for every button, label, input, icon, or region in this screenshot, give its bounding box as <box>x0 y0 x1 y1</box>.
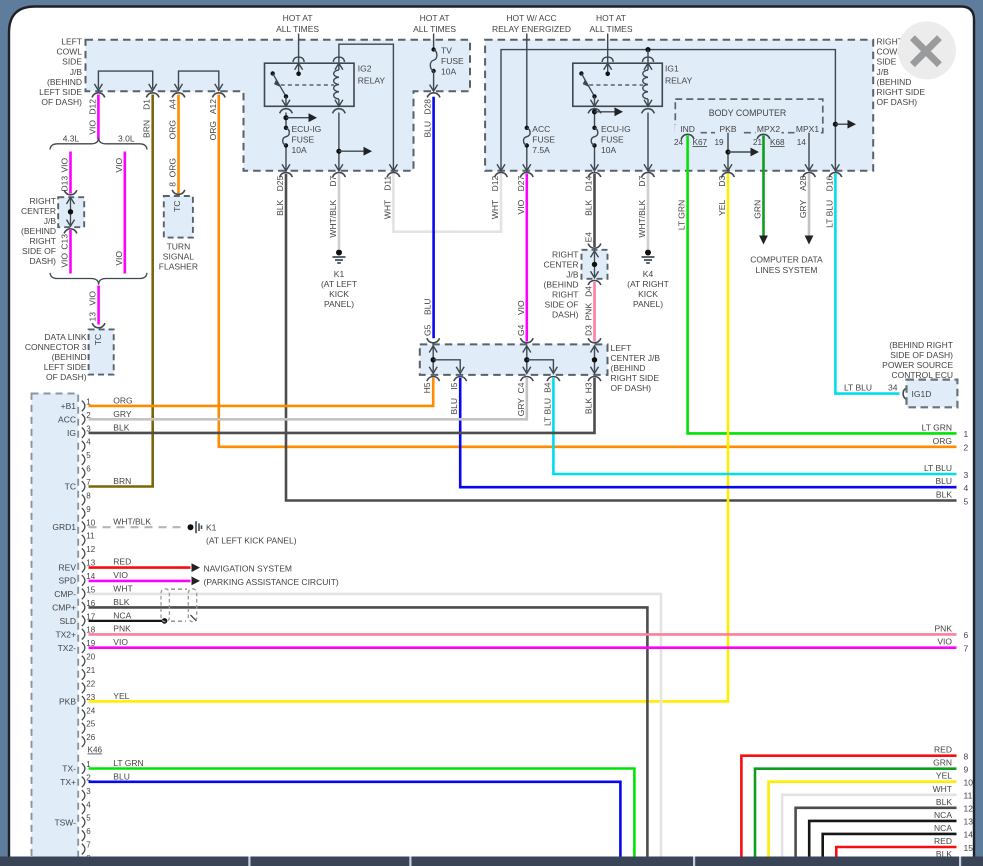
svg-text:ACC: ACC <box>532 124 550 134</box>
svg-text:34: 34 <box>888 383 898 393</box>
svg-text:RIGHT: RIGHT <box>30 236 56 246</box>
svg-text:(PARKING ASSISTANCE CIRCUIT): (PARKING ASSISTANCE CIRCUIT) <box>204 577 339 587</box>
svg-text:MPX1: MPX1 <box>796 124 819 134</box>
svg-text:+B1: +B1 <box>61 401 77 411</box>
svg-text:H5: H5 <box>422 382 432 393</box>
svg-text:C4: C4 <box>516 382 526 393</box>
svg-text:IG2: IG2 <box>358 64 372 74</box>
svg-text:LT BLU: LT BLU <box>844 383 872 393</box>
svg-text:LT BLU: LT BLU <box>542 398 552 426</box>
svg-text:BLK: BLK <box>936 490 952 500</box>
svg-text:6: 6 <box>86 465 91 474</box>
svg-text:WHT/BLK: WHT/BLK <box>637 199 647 237</box>
svg-text:H3: H3 <box>584 382 594 393</box>
svg-text:LT GRN: LT GRN <box>677 200 687 230</box>
svg-text:VIO: VIO <box>87 120 97 135</box>
svg-text:(BEHIND: (BEHIND <box>52 352 87 362</box>
svg-text:ORG: ORG <box>113 395 132 405</box>
svg-text:LT BLU: LT BLU <box>924 463 952 473</box>
svg-text:BLU: BLU <box>935 476 952 486</box>
svg-text:FUSE: FUSE <box>601 135 624 145</box>
svg-text:RELAY: RELAY <box>358 76 386 86</box>
svg-text:D1: D1 <box>142 99 152 110</box>
svg-text:K46: K46 <box>88 746 103 755</box>
svg-text:RELAY: RELAY <box>665 76 693 86</box>
svg-text:E4: E4 <box>584 232 594 243</box>
svg-text:KICK: KICK <box>329 289 349 299</box>
svg-text:(AT LEFT: (AT LEFT <box>321 279 357 289</box>
svg-text:D25: D25 <box>275 176 285 192</box>
svg-text:D13: D13 <box>60 176 70 192</box>
svg-text:PNK: PNK <box>584 303 594 321</box>
svg-text:BODY COMPUTER: BODY COMPUTER <box>709 108 787 118</box>
svg-text:SIDE OF DASH): SIDE OF DASH) <box>890 350 953 360</box>
svg-text:G5: G5 <box>423 324 433 336</box>
svg-text:ALL TIMES: ALL TIMES <box>590 24 633 34</box>
svg-text:SIDE: SIDE <box>62 57 82 67</box>
svg-text:24: 24 <box>86 706 95 715</box>
svg-text:4: 4 <box>86 438 91 447</box>
svg-text:FUSE: FUSE <box>441 56 464 66</box>
svg-text:ALL TIMES: ALL TIMES <box>276 24 319 34</box>
svg-text:21: 21 <box>86 666 95 675</box>
svg-text:DASH): DASH) <box>30 256 57 266</box>
svg-text:7: 7 <box>964 644 969 654</box>
svg-text:CMP-: CMP- <box>54 589 76 599</box>
svg-text:RED: RED <box>113 557 131 567</box>
svg-text:NCA: NCA <box>113 610 131 620</box>
svg-text:J/B: J/B <box>70 67 83 77</box>
svg-text:YEL: YEL <box>113 691 129 701</box>
svg-text:RIGHT: RIGHT <box>30 196 56 206</box>
svg-text:COMPUTER DATA: COMPUTER DATA <box>750 255 823 265</box>
svg-text:CENTER J/B: CENTER J/B <box>611 353 661 363</box>
svg-text:GRY: GRY <box>516 398 526 417</box>
svg-text:YEL: YEL <box>717 200 727 216</box>
svg-text:POWER SOURCE: POWER SOURCE <box>882 360 953 370</box>
svg-text:D7: D7 <box>637 176 647 187</box>
svg-text:10A: 10A <box>292 145 307 155</box>
svg-text:VIO: VIO <box>114 251 124 266</box>
svg-text:PNK: PNK <box>935 623 953 633</box>
svg-text:J/B: J/B <box>566 270 579 280</box>
svg-text:(BEHIND: (BEHIND <box>544 280 579 290</box>
svg-text:CONNECTOR 3: CONNECTOR 3 <box>25 342 87 352</box>
svg-text:13: 13 <box>964 817 974 827</box>
svg-text:CMP+: CMP+ <box>52 603 76 613</box>
svg-text:8: 8 <box>964 752 969 762</box>
svg-text:13: 13 <box>86 559 95 568</box>
svg-text:TX2-: TX2- <box>58 643 77 653</box>
svg-text:IND: IND <box>680 124 695 134</box>
svg-text:LT BLU: LT BLU <box>824 200 834 228</box>
svg-text:IG1: IG1 <box>665 64 679 74</box>
svg-text:10A: 10A <box>441 67 456 77</box>
svg-text:WHT/BLK: WHT/BLK <box>328 199 338 237</box>
svg-text:10A: 10A <box>601 145 616 155</box>
svg-text:26: 26 <box>86 733 95 742</box>
svg-text:20: 20 <box>86 653 95 662</box>
svg-text:PNK: PNK <box>113 624 131 634</box>
svg-text:VIO: VIO <box>516 300 526 315</box>
svg-text:VIO: VIO <box>516 199 526 214</box>
svg-text:D27: D27 <box>516 176 526 192</box>
svg-text:SPD: SPD <box>59 576 76 586</box>
svg-text:8: 8 <box>86 491 91 500</box>
svg-text:TC: TC <box>172 201 182 212</box>
svg-text:J/B: J/B <box>44 216 57 226</box>
svg-text:D7: D7 <box>328 176 338 187</box>
svg-text:4: 4 <box>86 800 91 809</box>
svg-text:K68: K68 <box>770 138 785 147</box>
svg-text:RIGHT: RIGHT <box>552 250 578 260</box>
svg-text:OF DASH): OF DASH) <box>611 383 652 393</box>
svg-text:ORG: ORG <box>168 120 178 139</box>
svg-text:REV: REV <box>59 562 77 572</box>
svg-text:6: 6 <box>964 630 969 640</box>
svg-text:TX+: TX+ <box>60 777 76 787</box>
svg-text:I5: I5 <box>449 382 459 389</box>
svg-text:D12: D12 <box>490 176 500 192</box>
svg-text:FUSE: FUSE <box>292 135 315 145</box>
svg-text:5: 5 <box>86 451 91 460</box>
svg-text:19: 19 <box>715 138 725 147</box>
svg-text:LINES SYSTEM: LINES SYSTEM <box>756 265 818 275</box>
svg-text:CENTER: CENTER <box>544 260 579 270</box>
svg-text:TC: TC <box>93 334 103 345</box>
svg-text:21: 21 <box>753 138 763 147</box>
svg-text:WHT/BLK: WHT/BLK <box>113 516 151 526</box>
svg-text:RIGHT SIDE: RIGHT SIDE <box>877 87 926 97</box>
svg-text:10: 10 <box>964 778 974 788</box>
svg-text:OF DASH): OF DASH) <box>46 372 87 382</box>
svg-text:WHT: WHT <box>113 583 132 593</box>
svg-text:22: 22 <box>86 679 95 688</box>
svg-text:VIO: VIO <box>114 157 124 172</box>
svg-text:23: 23 <box>86 693 95 702</box>
svg-text:12: 12 <box>964 804 974 814</box>
svg-text:11: 11 <box>964 791 973 801</box>
svg-text:25: 25 <box>86 720 95 729</box>
svg-text:D16: D16 <box>824 176 834 192</box>
svg-text:RIGHT: RIGHT <box>552 290 578 300</box>
svg-text:SIDE OF: SIDE OF <box>544 300 578 310</box>
svg-text:A28: A28 <box>798 176 808 191</box>
svg-text:LT GRN: LT GRN <box>922 422 952 432</box>
svg-text:D14: D14 <box>584 176 594 192</box>
svg-text:1: 1 <box>964 429 969 439</box>
svg-text:GRY: GRY <box>798 199 808 218</box>
svg-text:RELAY ENERGIZED: RELAY ENERGIZED <box>492 24 571 34</box>
svg-text:NCA: NCA <box>934 823 952 833</box>
svg-text:VIO: VIO <box>60 253 70 268</box>
svg-text:VIO: VIO <box>88 291 98 306</box>
svg-text:7.5A: 7.5A <box>532 145 550 155</box>
svg-text:FUSE: FUSE <box>532 135 555 145</box>
svg-text:DATA LINK: DATA LINK <box>44 332 87 342</box>
svg-text:D28: D28 <box>423 99 433 115</box>
svg-text:PANEL): PANEL) <box>324 299 354 309</box>
svg-text:WHT: WHT <box>382 200 392 219</box>
svg-text:A4: A4 <box>168 99 178 110</box>
svg-text:D12: D12 <box>87 99 97 115</box>
svg-text:D11: D11 <box>382 176 392 191</box>
svg-text:BLU: BLU <box>423 298 433 315</box>
svg-text:(BEHIND: (BEHIND <box>21 226 56 236</box>
svg-text:3: 3 <box>86 787 91 796</box>
svg-text:A12: A12 <box>208 99 218 114</box>
svg-text:KICK: KICK <box>638 289 658 299</box>
svg-text:1: 1 <box>86 397 91 406</box>
svg-text:RED: RED <box>934 836 952 846</box>
svg-text:SLD: SLD <box>59 616 76 626</box>
svg-text:BLU: BLU <box>113 771 130 781</box>
svg-text:9: 9 <box>964 765 969 775</box>
svg-text:WHT: WHT <box>933 784 952 794</box>
svg-text:(AT RIGHT: (AT RIGHT <box>627 279 669 289</box>
svg-text:5: 5 <box>964 496 969 506</box>
svg-text:TURN: TURN <box>167 242 191 252</box>
svg-text:TV: TV <box>441 46 452 56</box>
svg-text:HOT AT: HOT AT <box>596 13 626 23</box>
svg-text:4.3L: 4.3L <box>63 134 80 144</box>
svg-text:BLK: BLK <box>584 199 594 215</box>
svg-text:D3: D3 <box>717 176 727 187</box>
svg-text:BLK: BLK <box>936 797 952 807</box>
svg-text:MPX2: MPX2 <box>757 124 780 134</box>
svg-text:(BEHIND RIGHT: (BEHIND RIGHT <box>889 340 953 350</box>
svg-text:LEFT: LEFT <box>611 343 632 353</box>
svg-text:BLK: BLK <box>113 597 129 607</box>
svg-text:(BEHIND: (BEHIND <box>877 77 912 87</box>
svg-text:PKB: PKB <box>59 697 76 707</box>
svg-text:3.0L: 3.0L <box>118 134 135 144</box>
svg-text:BLU: BLU <box>449 398 459 415</box>
svg-text:14: 14 <box>797 138 807 147</box>
svg-text:TX-: TX- <box>62 764 76 774</box>
svg-text:COWL: COWL <box>57 47 83 57</box>
svg-text:13: 13 <box>88 312 98 322</box>
svg-text:8: 8 <box>168 182 178 187</box>
svg-text:PKB: PKB <box>719 124 736 134</box>
svg-text:24: 24 <box>674 138 684 147</box>
svg-text:2: 2 <box>86 411 91 420</box>
svg-text:BLU: BLU <box>423 121 433 138</box>
svg-text:WHT: WHT <box>490 200 500 219</box>
svg-text:HOT AT: HOT AT <box>283 13 313 23</box>
svg-text:PANEL): PANEL) <box>633 299 663 309</box>
svg-text:D4: D4 <box>584 286 594 297</box>
svg-text:LEFT SIDE: LEFT SIDE <box>44 362 87 372</box>
svg-text:14: 14 <box>964 830 974 840</box>
svg-text:12: 12 <box>86 545 95 554</box>
svg-text:7: 7 <box>86 478 91 487</box>
svg-text:ALL TIMES: ALL TIMES <box>413 24 456 34</box>
svg-text:3: 3 <box>964 470 969 480</box>
svg-text:2: 2 <box>964 443 969 453</box>
svg-text:K67: K67 <box>693 138 708 147</box>
svg-text:SIDE OF: SIDE OF <box>22 246 56 256</box>
svg-text:BRN: BRN <box>142 120 152 138</box>
svg-text:10: 10 <box>86 518 95 527</box>
svg-text:ORG: ORG <box>208 121 218 140</box>
svg-text:LEFT: LEFT <box>61 37 82 47</box>
svg-text:11: 11 <box>86 532 95 541</box>
svg-text:GRN: GRN <box>753 200 763 219</box>
svg-text:B4: B4 <box>542 382 552 393</box>
svg-text:NAVIGATION SYSTEM: NAVIGATION SYSTEM <box>204 564 292 574</box>
svg-text:NCA: NCA <box>934 810 952 820</box>
svg-text:DASH): DASH) <box>552 310 579 320</box>
svg-text:K1: K1 <box>334 269 345 279</box>
svg-text:IG1D: IG1D <box>912 389 932 399</box>
svg-text:D3: D3 <box>584 325 594 336</box>
svg-text:LT GRN: LT GRN <box>113 758 143 768</box>
svg-text:G4: G4 <box>516 324 526 336</box>
svg-text:VIO: VIO <box>937 637 952 647</box>
svg-text:VIO: VIO <box>113 637 128 647</box>
svg-text:TSW-: TSW- <box>54 817 76 827</box>
svg-text:ECU-IG: ECU-IG <box>601 124 631 134</box>
svg-text:3: 3 <box>86 424 91 433</box>
svg-text:VIO: VIO <box>60 157 70 172</box>
svg-text:C13: C13 <box>60 234 70 250</box>
svg-text:K1: K1 <box>206 523 217 533</box>
svg-text:9: 9 <box>86 505 91 514</box>
svg-text:7: 7 <box>86 841 91 850</box>
svg-text:ACC: ACC <box>58 415 76 425</box>
svg-text:BLK: BLK <box>584 398 594 414</box>
svg-text:YEL: YEL <box>936 771 952 781</box>
svg-text:K4: K4 <box>643 269 654 279</box>
svg-text:IG: IG <box>67 428 76 438</box>
svg-text:RED: RED <box>934 745 952 755</box>
svg-text:ORG: ORG <box>933 436 952 446</box>
svg-text:TC: TC <box>65 482 76 492</box>
svg-text:6: 6 <box>86 827 91 836</box>
svg-text:GRY: GRY <box>113 409 132 419</box>
svg-text:RIGHT SIDE: RIGHT SIDE <box>611 373 660 383</box>
svg-text:SIGNAL: SIGNAL <box>163 252 194 262</box>
svg-text:(BEHIND: (BEHIND <box>47 77 82 87</box>
svg-text:15: 15 <box>964 843 974 853</box>
svg-text:GRN: GRN <box>933 758 952 768</box>
svg-text:ECU-IG: ECU-IG <box>292 124 322 134</box>
svg-text:ORG: ORG <box>168 158 178 177</box>
svg-text:(BEHIND: (BEHIND <box>611 363 646 373</box>
svg-text:BLK: BLK <box>113 422 129 432</box>
svg-text:CENTER: CENTER <box>21 206 56 216</box>
svg-text:TX2+: TX2+ <box>55 629 76 639</box>
svg-text:OF DASH): OF DASH) <box>877 97 918 107</box>
svg-text:5: 5 <box>86 814 91 823</box>
svg-text:BRN: BRN <box>113 476 131 486</box>
svg-text:GRD1: GRD1 <box>52 522 76 532</box>
svg-text:(AT LEFT KICK PANEL): (AT LEFT KICK PANEL) <box>206 536 297 546</box>
svg-text:BLK: BLK <box>275 199 285 215</box>
svg-text:SIDE: SIDE <box>877 57 897 67</box>
svg-text:4: 4 <box>964 483 969 493</box>
svg-text:OF DASH): OF DASH) <box>41 97 82 107</box>
svg-text:FLASHER: FLASHER <box>159 262 198 272</box>
svg-text:VIO: VIO <box>113 570 128 580</box>
svg-text:HOT W/ ACC: HOT W/ ACC <box>506 13 556 23</box>
svg-text:HOT AT: HOT AT <box>420 13 450 23</box>
svg-text:J/B: J/B <box>877 67 890 77</box>
svg-text:LEFT SIDE: LEFT SIDE <box>39 87 82 97</box>
